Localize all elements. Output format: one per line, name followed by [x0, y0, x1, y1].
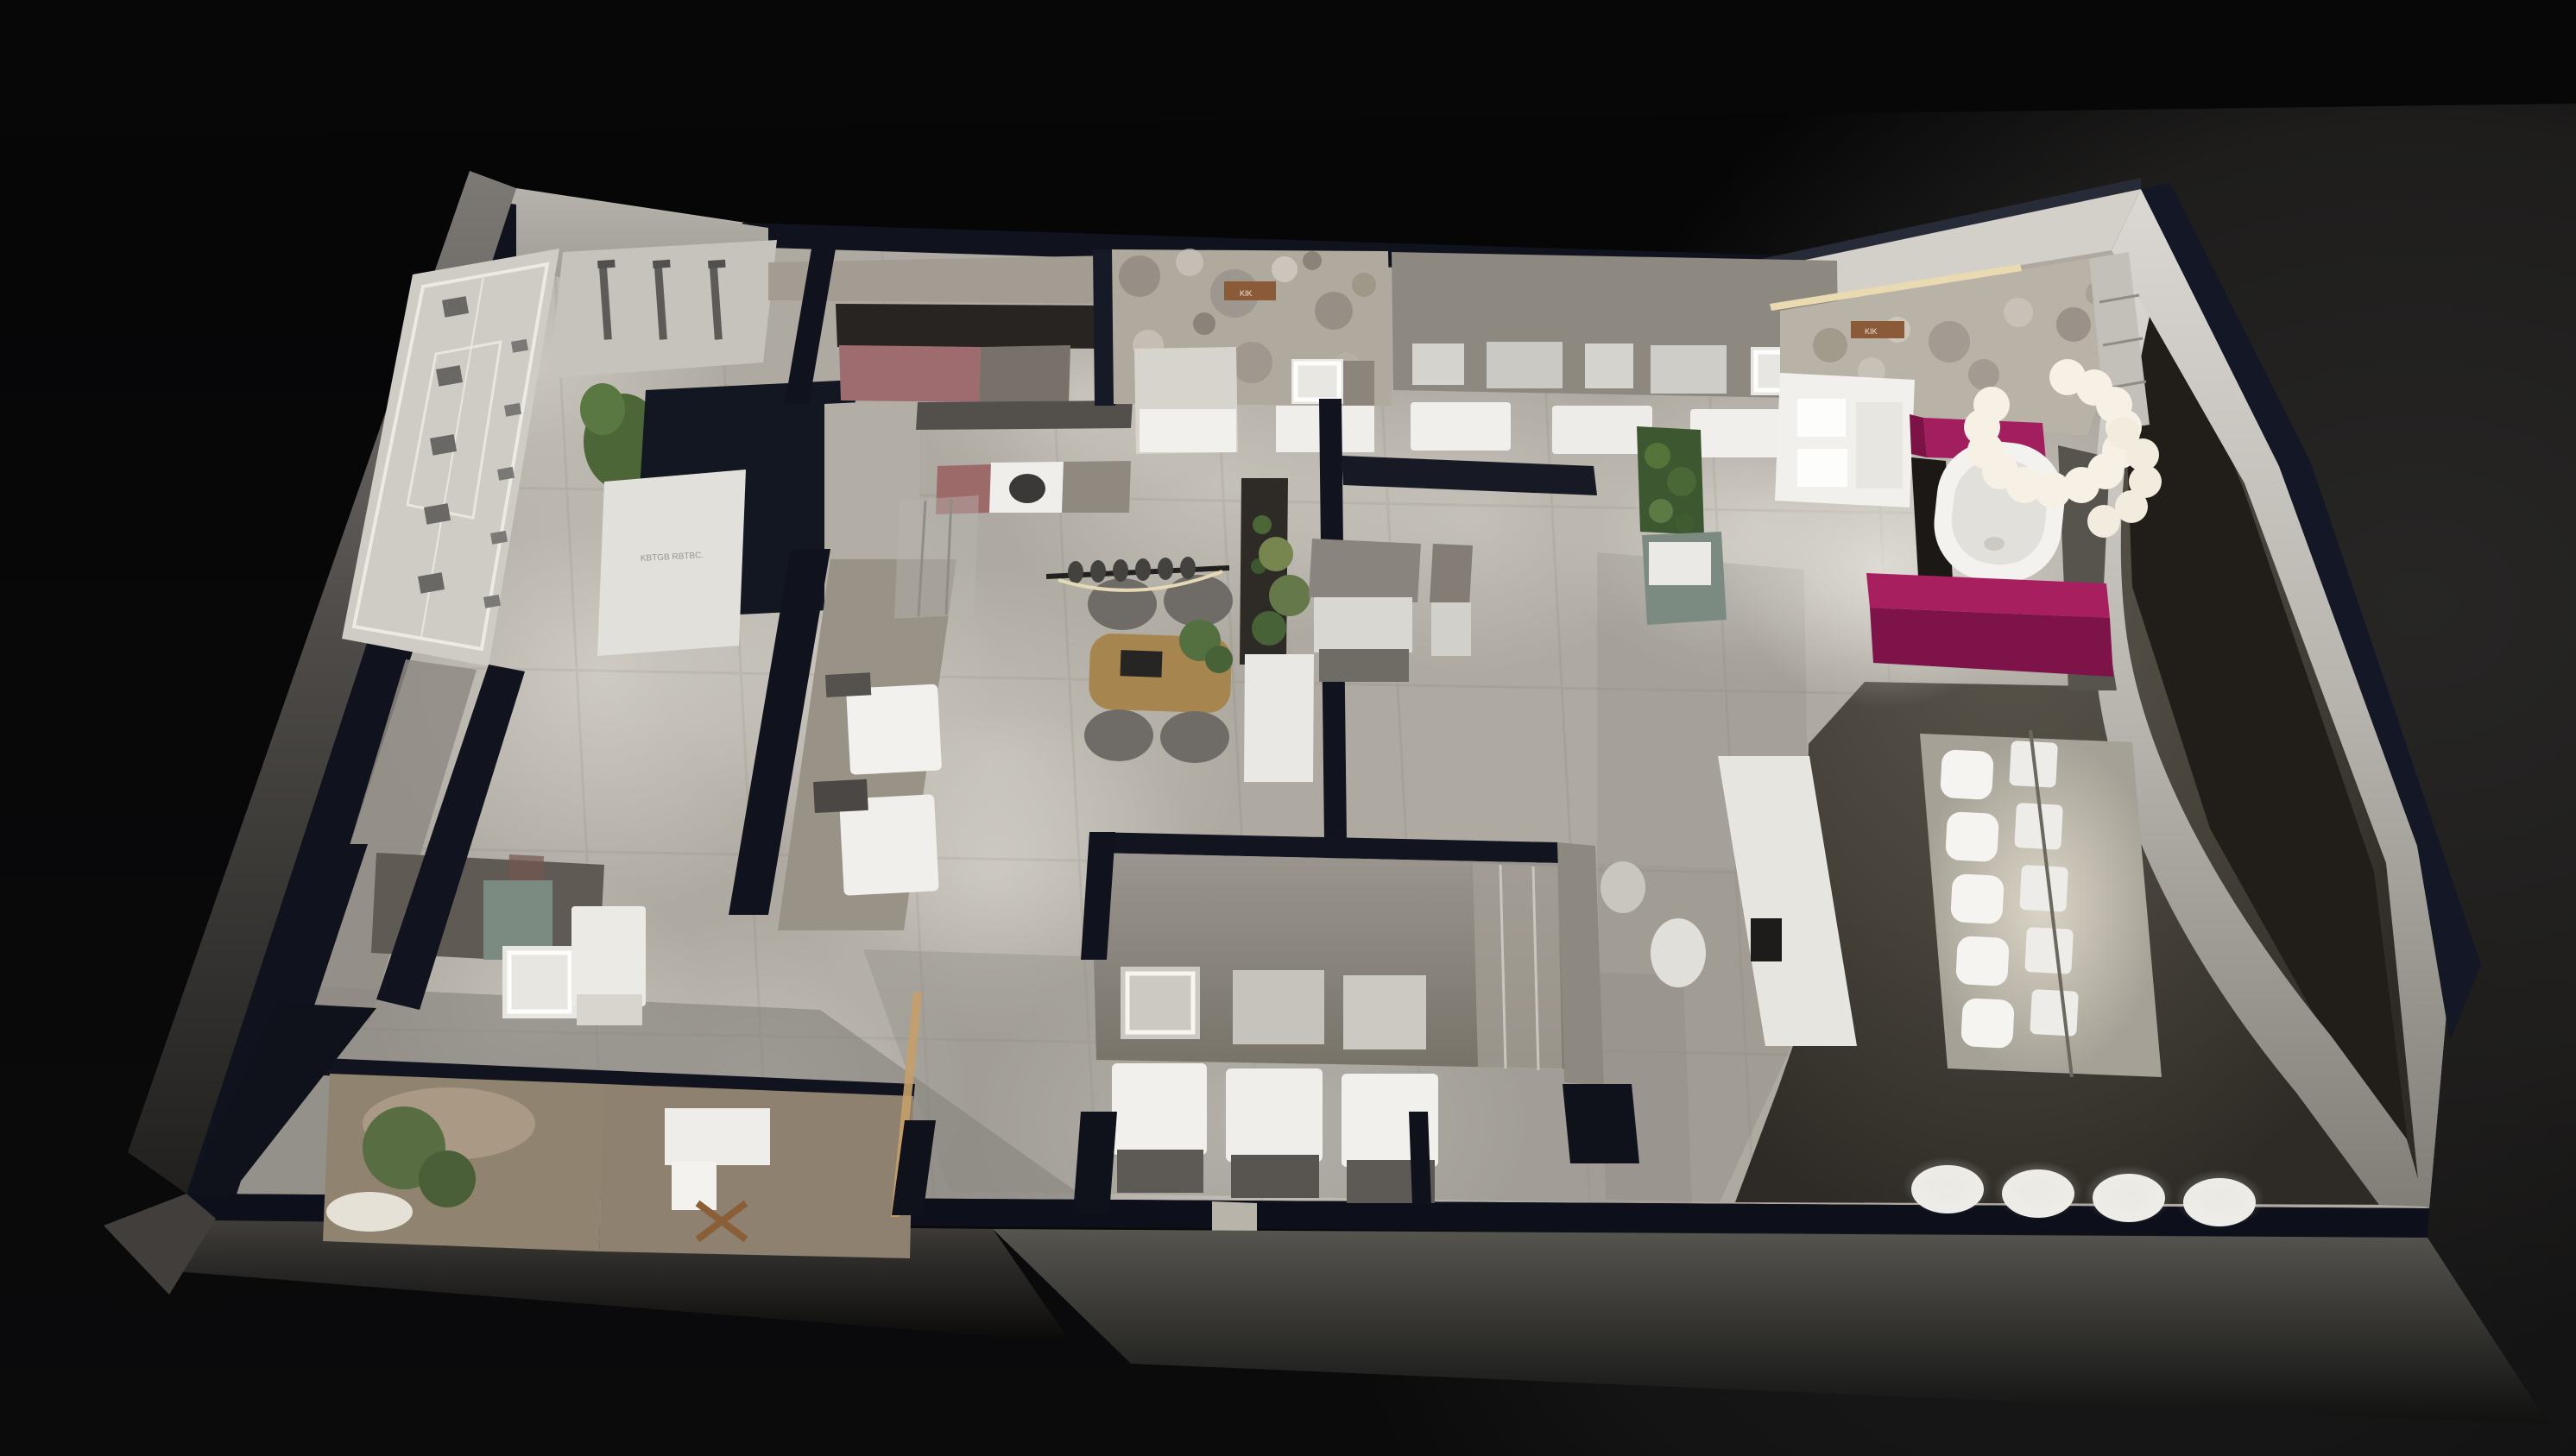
svg-text:KIK: KIK — [1240, 289, 1253, 298]
svg-text:KIK: KIK — [1865, 327, 1878, 336]
